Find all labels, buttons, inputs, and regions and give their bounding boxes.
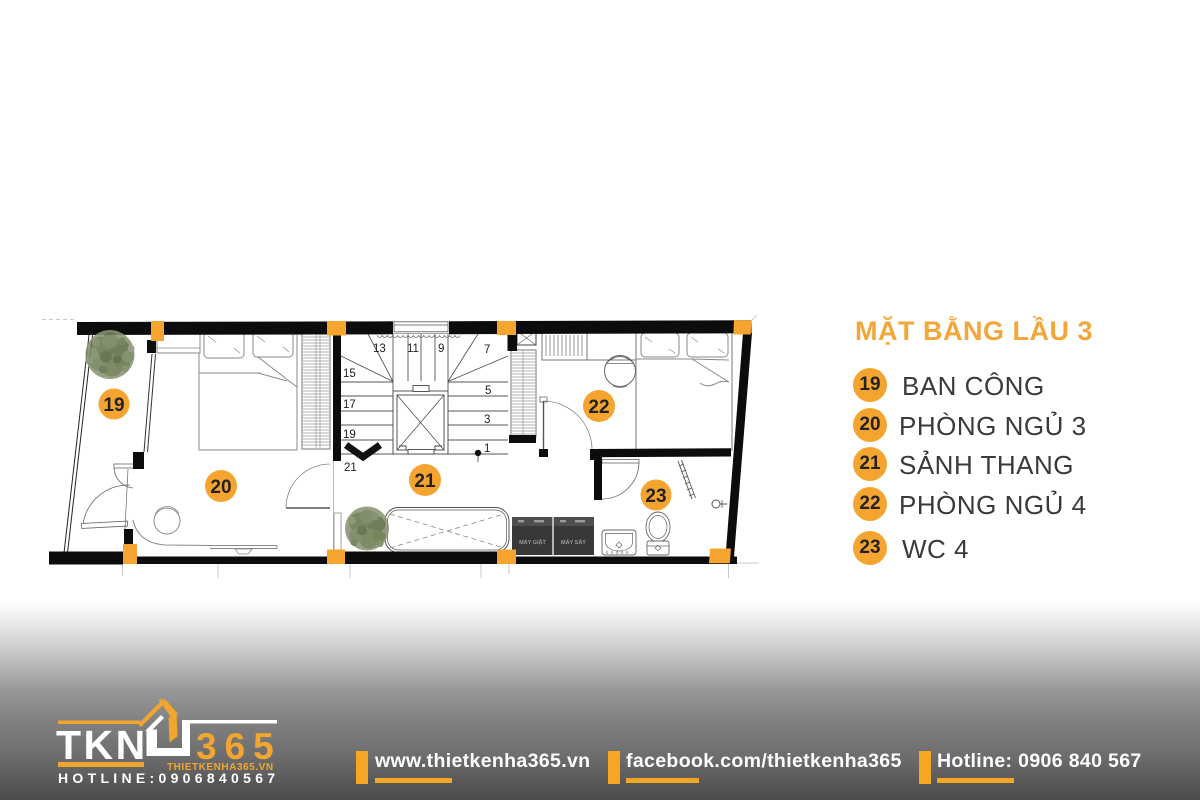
svg-text:19: 19	[343, 429, 356, 441]
svg-text:13: 13	[373, 343, 386, 355]
svg-text:MÁY SẤY: MÁY SẤY	[561, 539, 586, 546]
svg-text:3: 3	[484, 414, 490, 426]
svg-text:9: 9	[438, 343, 444, 355]
svg-text:23: 23	[645, 486, 666, 507]
svg-text:15: 15	[343, 368, 356, 380]
svg-text:17: 17	[343, 399, 356, 411]
svg-text:21: 21	[344, 462, 357, 474]
svg-text:HOTLINE:0906840567: HOTLINE:0906840567	[58, 770, 279, 786]
svg-text:365: 365	[196, 726, 282, 767]
svg-text:19: 19	[103, 395, 124, 416]
svg-text:20: 20	[210, 477, 231, 498]
svg-text:22: 22	[588, 397, 609, 418]
svg-text:1: 1	[484, 443, 490, 455]
svg-text:TKN: TKN	[56, 722, 148, 768]
svg-text:11: 11	[407, 343, 419, 355]
svg-text:MÁY GIẶT: MÁY GIẶT	[519, 539, 546, 546]
svg-text:21: 21	[414, 471, 436, 492]
svg-text:7: 7	[484, 344, 490, 356]
svg-text:5: 5	[485, 385, 491, 397]
